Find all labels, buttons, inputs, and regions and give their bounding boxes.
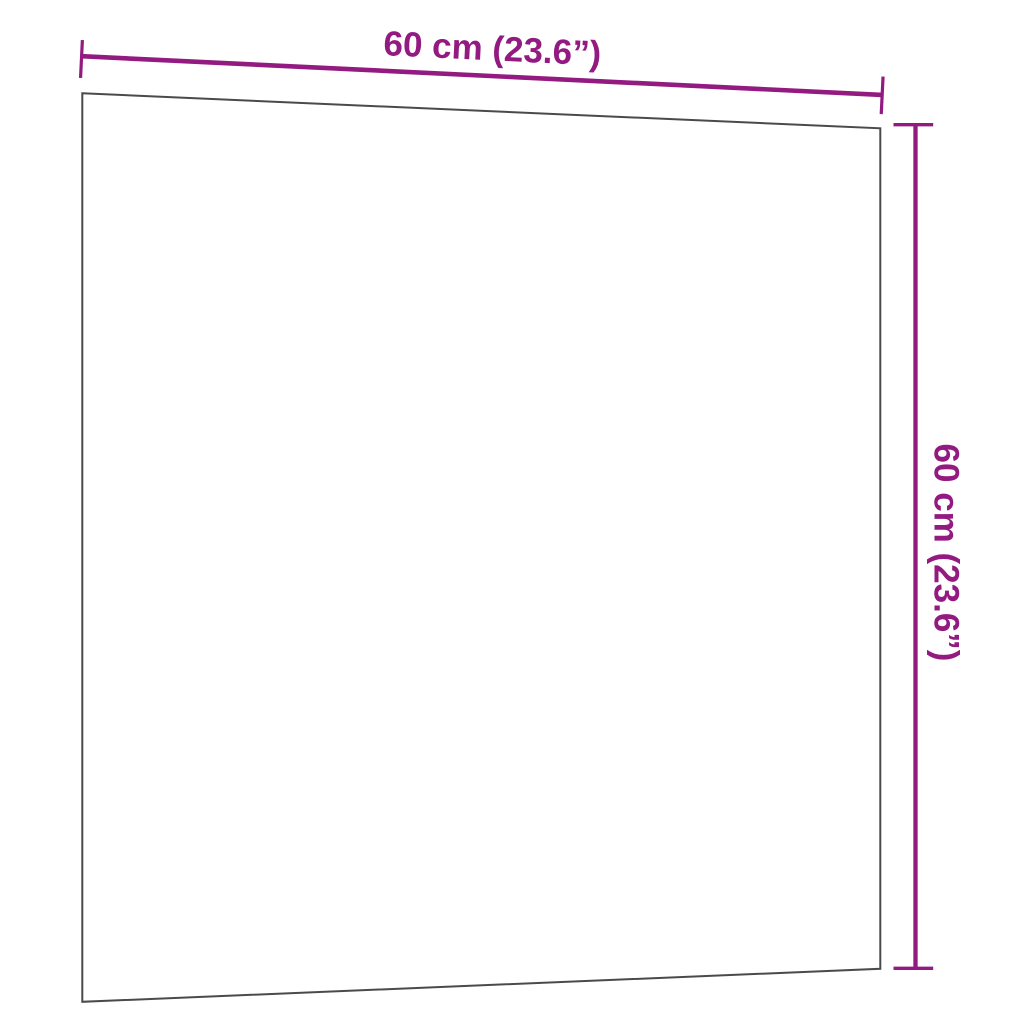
svg-text:60 cm (23.6”): 60 cm (23.6”): [383, 24, 603, 73]
svg-text:60 cm (23.6”): 60 cm (23.6”): [927, 444, 966, 662]
